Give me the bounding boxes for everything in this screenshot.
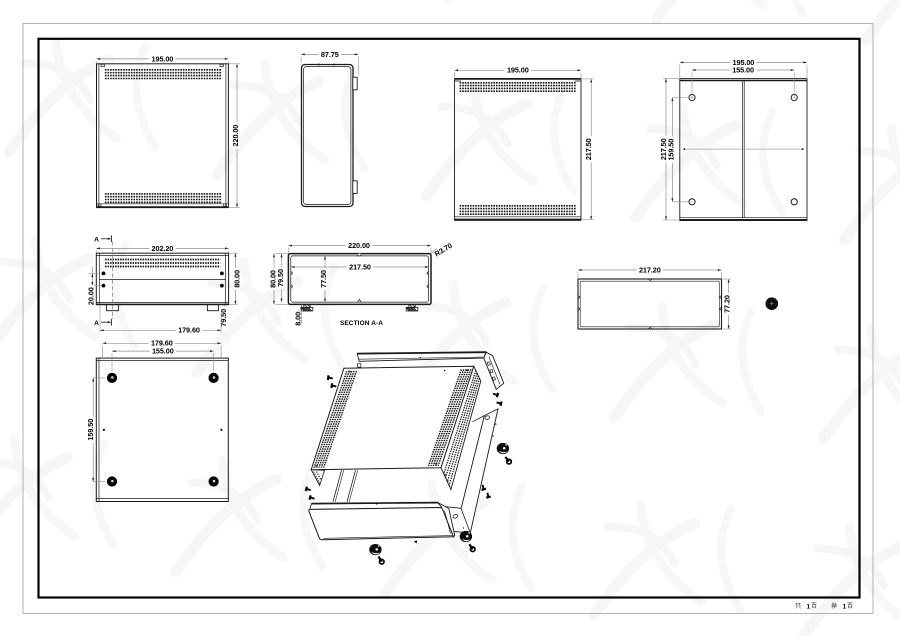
svg-text:220.00: 220.00	[348, 241, 370, 250]
svg-text:155.00: 155.00	[732, 65, 754, 74]
svg-text:217.20: 217.20	[639, 265, 661, 274]
svg-text:77.20: 77.20	[723, 295, 732, 313]
svg-text:159.50: 159.50	[666, 139, 675, 161]
svg-text:220.00: 220.00	[231, 125, 240, 147]
svg-text:8.00: 8.00	[294, 312, 303, 326]
svg-text:195.00: 195.00	[507, 66, 529, 75]
svg-text:1: 1	[843, 604, 847, 611]
svg-text:A: A	[94, 237, 99, 244]
svg-text:A: A	[94, 320, 99, 327]
svg-text:79.50: 79.50	[219, 309, 228, 327]
svg-text:217.50: 217.50	[584, 138, 593, 160]
svg-text:1: 1	[807, 604, 811, 611]
svg-text:155.00: 155.00	[152, 347, 174, 356]
svg-text:SECTION A-A: SECTION A-A	[340, 320, 383, 327]
svg-text:202.20: 202.20	[152, 244, 174, 253]
svg-text:80.00: 80.00	[232, 270, 241, 288]
svg-text:77.50: 77.50	[319, 270, 328, 288]
svg-text:159.50: 159.50	[86, 419, 95, 441]
svg-text:79.50: 79.50	[276, 269, 285, 287]
svg-text:179.60: 179.60	[178, 326, 200, 335]
svg-text:20.00: 20.00	[87, 287, 96, 305]
svg-text:195.00: 195.00	[152, 54, 174, 63]
svg-text:87.75: 87.75	[321, 50, 339, 59]
svg-text:217.50: 217.50	[349, 262, 371, 271]
